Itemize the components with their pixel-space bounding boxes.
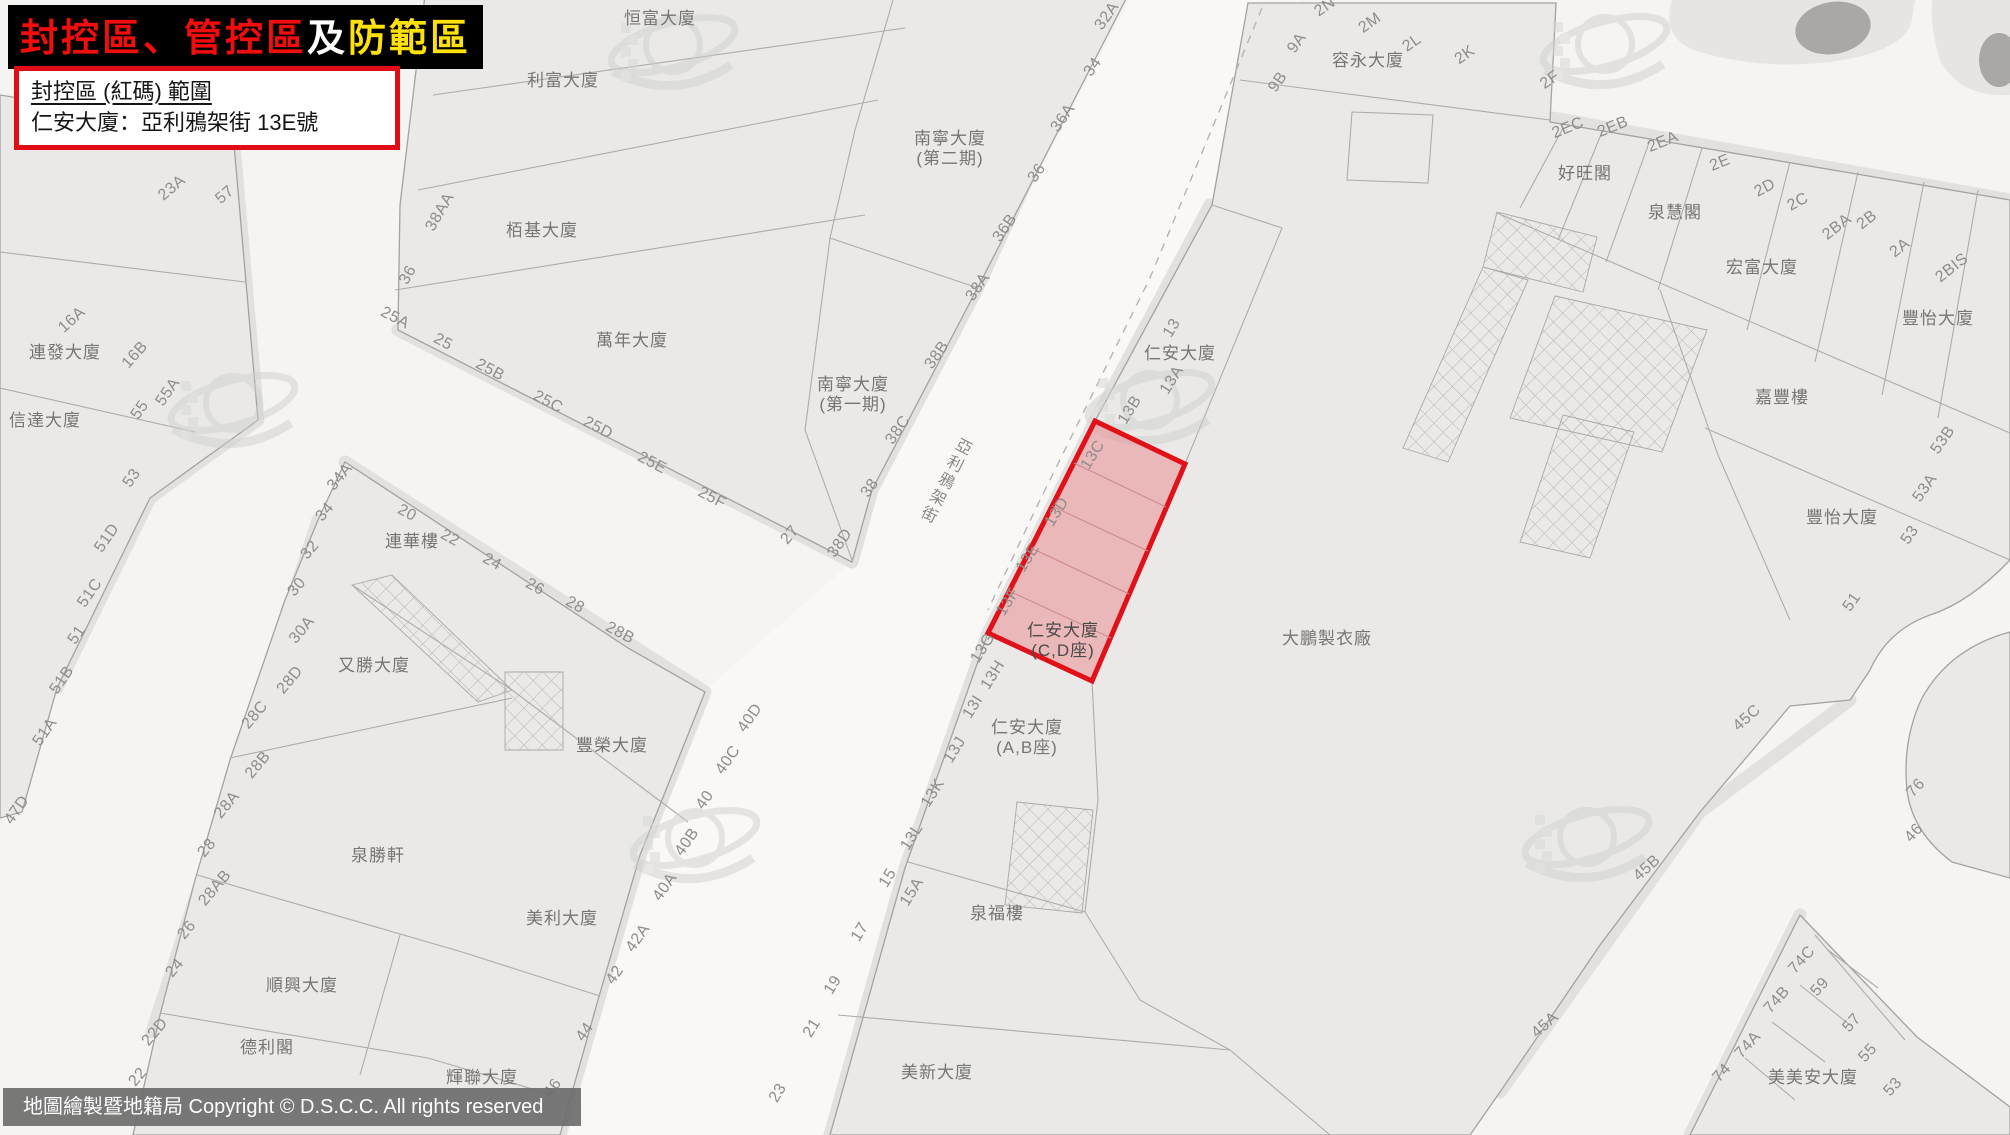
building-name-label: 萬年大廈 (596, 331, 668, 350)
building-name-label: 南寧大廈(第一期) (817, 375, 889, 414)
building-name-label: 好旺閣 (1558, 164, 1612, 183)
banner-segment-yellow: 防範區 (348, 18, 471, 60)
building-name-label: 連華樓 (385, 532, 439, 551)
building-name-label: 美新大廈 (901, 1063, 973, 1082)
building-name-label: 栢基大廈 (506, 221, 578, 240)
building-name-label: 豐怡大廈 (1806, 508, 1878, 527)
building-name-label: 豐怡大廈 (1902, 309, 1974, 328)
building-name-label: 嘉豐樓 (1755, 388, 1809, 407)
copyright-text: 地圖繪製暨地籍局 Copyright © D.S.C.C. All rights… (23, 1096, 543, 1118)
copyright-footer: 地圖繪製暨地籍局 Copyright © D.S.C.C. All rights… (3, 1088, 581, 1126)
red-zone-info-address: 仁安大廈：亞利鴉架街 13E號 (31, 107, 383, 138)
building-name-label: 信達大廈 (9, 411, 81, 430)
red-zone-info-box: 封控區 (紅碼) 範圍 仁安大廈：亞利鴉架街 13E號 (14, 66, 400, 150)
building-name-label: 仁安大廈(A,B座) (991, 718, 1063, 757)
banner-segment-red: 封控區、管控區 (20, 18, 307, 60)
building-name-label: 又勝大廈 (338, 656, 410, 675)
building-name-label: 大鵬製衣廠 (1282, 628, 1372, 648)
building-name-label: 連發大廈 (29, 343, 101, 362)
banner-segment-white: 及 (307, 18, 348, 60)
building-name-label: 豐榮大廈 (576, 736, 648, 755)
building-name-label: 輝聯大廈 (446, 1068, 518, 1087)
building-name-label: 泉慧閣 (1648, 203, 1702, 222)
building-name-label: 美美安大廈 (1768, 1068, 1858, 1087)
building-name-label: 泉福樓 (970, 904, 1024, 923)
building-name-label: 宏富大廈 (1726, 258, 1798, 277)
building-name-label: 容永大廈 (1332, 51, 1404, 70)
stairs-symbol (505, 672, 563, 750)
building-name-label: 南寧大廈(第二期) (914, 129, 986, 168)
building-name-label: 美利大廈 (526, 909, 598, 928)
cadastral-map: 亞利鴉架街 23A5716A16B55A555351D51C5151B51A47… (0, 0, 2010, 1135)
building-name-label: 德利閣 (240, 1038, 294, 1057)
building-name-label: 仁安大廈(C,D座) (1027, 621, 1099, 660)
building-name-label: 泉勝軒 (351, 846, 405, 865)
building-name-label: 順興大廈 (266, 976, 338, 995)
red-zone-info-title: 封控區 (紅碼) 範圍 (31, 76, 383, 107)
building-name-label: 仁安大廈 (1144, 344, 1216, 363)
building-name-label: 利富大廈 (527, 71, 599, 90)
building-name-label: 恒富大廈 (624, 9, 696, 28)
title-banner: 封控區、管控區及防範區 (8, 5, 483, 69)
map-canvas: 亞利鴉架街 23A5716A16B55A555351D51C5151B51A47… (0, 0, 2010, 1135)
